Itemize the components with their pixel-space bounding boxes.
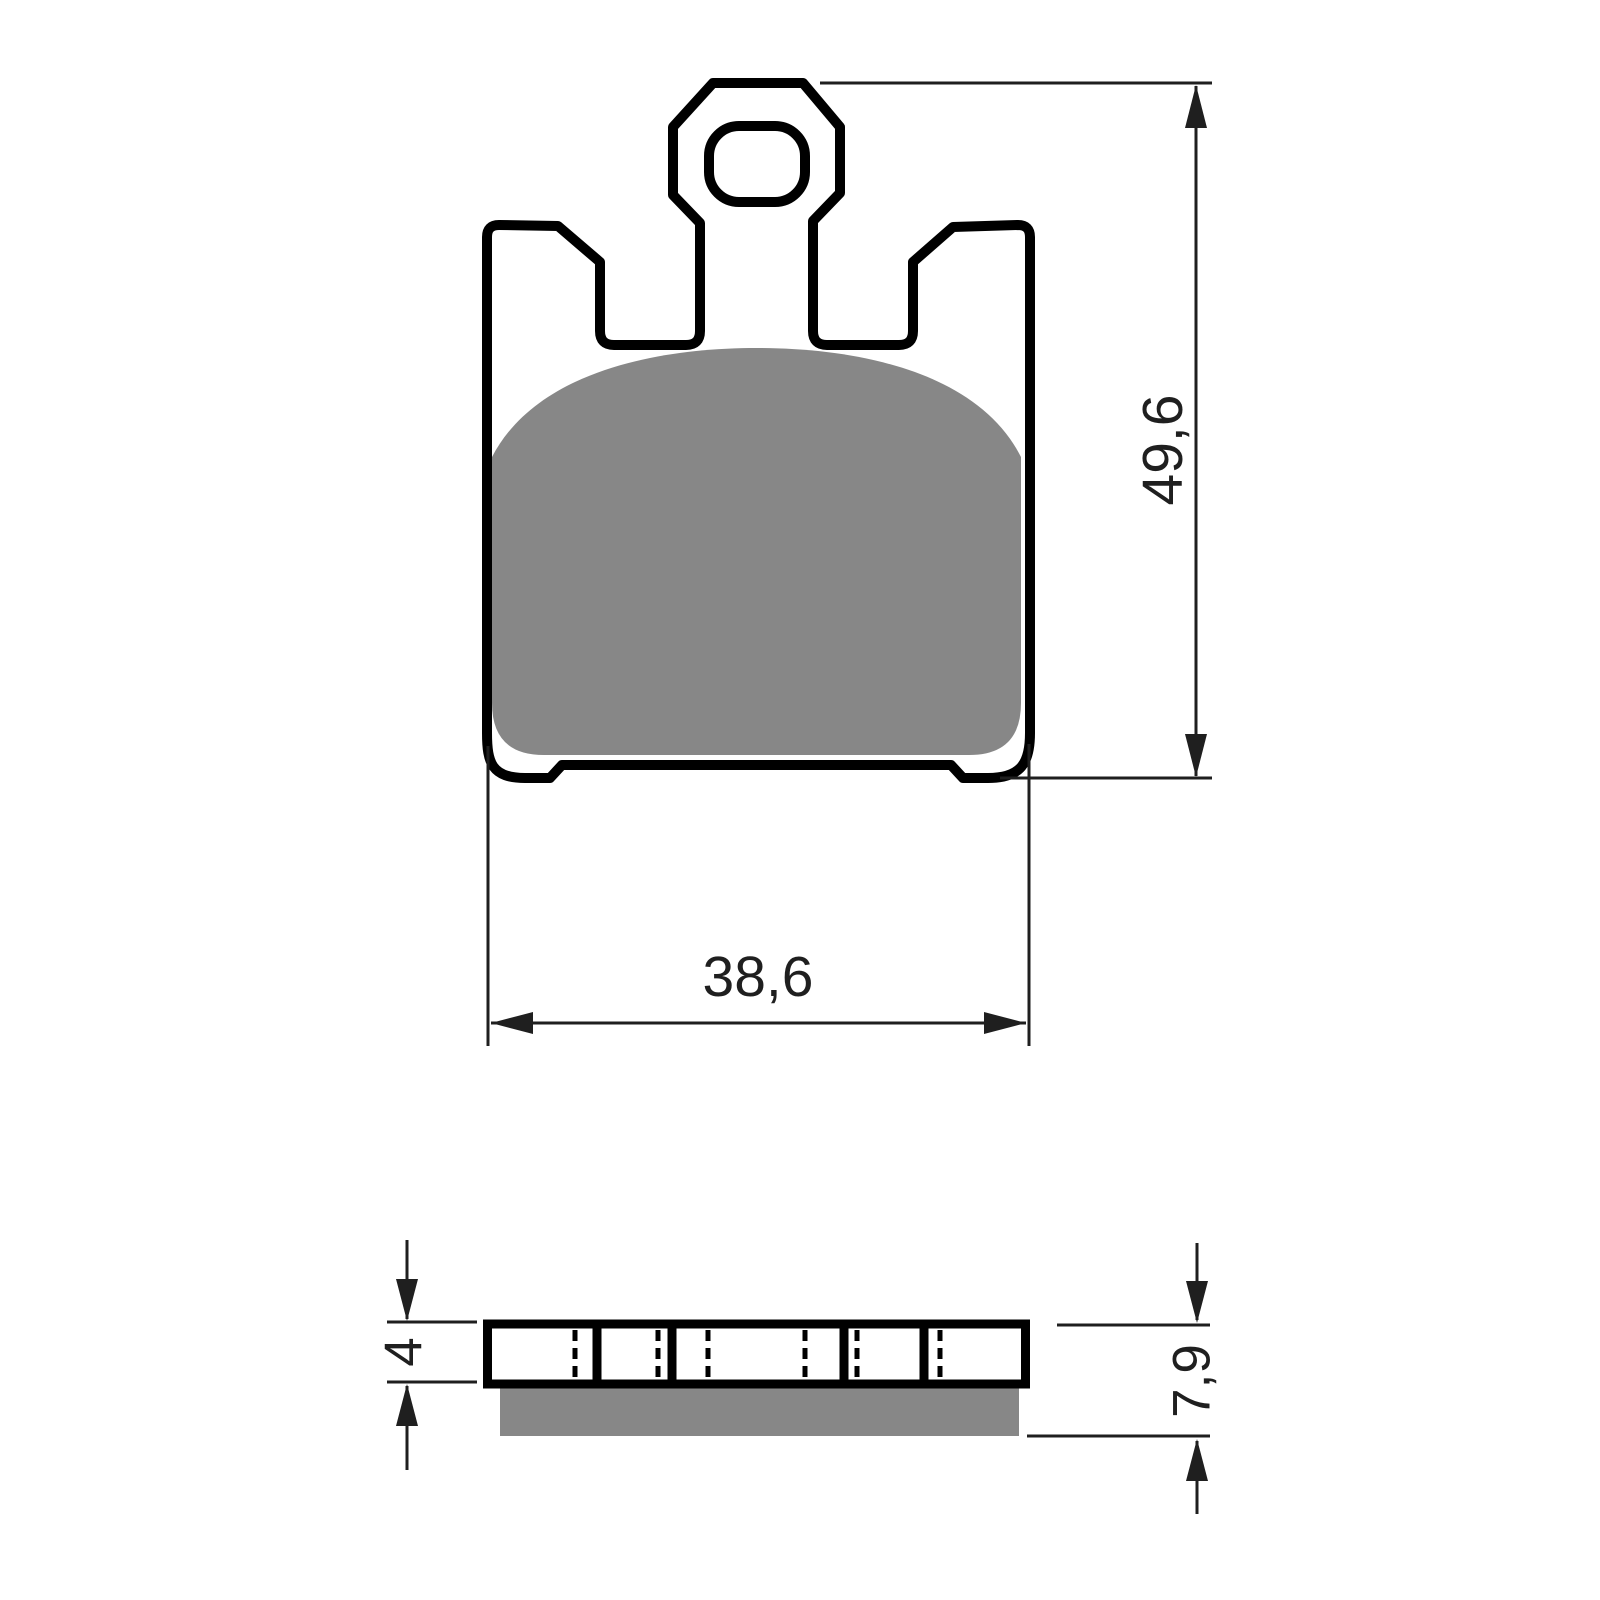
side-view: [488, 1322, 1026, 1436]
drawing-svg: 49,6 38,6: [0, 0, 1600, 1600]
width-dimension: 38,6: [488, 744, 1029, 1046]
friction-material: [492, 348, 1021, 755]
total-thickness-arrow-down-icon: [1186, 1281, 1208, 1323]
height-arrow-down-icon: [1185, 734, 1207, 777]
height-arrow-up-icon: [1185, 85, 1207, 128]
total-thickness-label: 7,9: [1163, 1344, 1222, 1418]
side-backing-plate: [488, 1324, 1026, 1384]
mounting-hole: [709, 126, 805, 202]
plate-thickness-label: 4: [375, 1337, 434, 1366]
plate-thickness-dimension: 4: [375, 1240, 478, 1470]
side-friction-material: [500, 1386, 1019, 1436]
total-thickness-dimension: 7,9: [1027, 1243, 1222, 1514]
width-arrow-right-icon: [984, 1012, 1026, 1034]
width-dimension-label: 38,6: [703, 945, 814, 1009]
plate-thickness-arrow-down-icon: [396, 1279, 418, 1321]
height-dimension-label: 49,6: [1131, 395, 1195, 506]
width-arrow-left-icon: [491, 1012, 533, 1034]
front-view: [487, 83, 1030, 778]
technical-drawing: 49,6 38,6: [0, 0, 1600, 1600]
